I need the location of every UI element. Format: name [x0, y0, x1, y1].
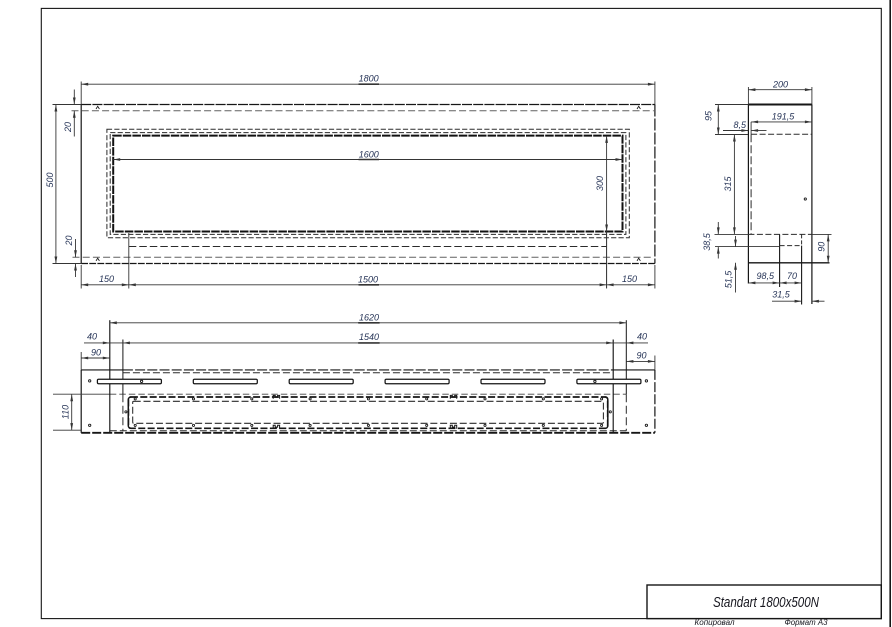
svg-text:315: 315	[723, 176, 733, 192]
svg-text:1500: 1500	[358, 274, 378, 284]
svg-text:51,5: 51,5	[724, 270, 734, 289]
svg-text:1540: 1540	[359, 332, 379, 342]
svg-text:40: 40	[87, 332, 97, 342]
svg-text:20: 20	[63, 122, 73, 133]
svg-text:191,5: 191,5	[772, 112, 796, 122]
svg-text:90: 90	[816, 242, 826, 252]
svg-text:38,5: 38,5	[702, 232, 712, 251]
svg-text:1620: 1620	[359, 312, 379, 322]
svg-text:150: 150	[99, 274, 114, 284]
svg-text:500: 500	[45, 172, 55, 187]
svg-text:70: 70	[787, 271, 797, 281]
svg-text:90: 90	[636, 351, 646, 361]
svg-text:1800: 1800	[359, 73, 379, 83]
svg-text:98,5: 98,5	[757, 271, 776, 281]
svg-text:1600: 1600	[359, 150, 379, 160]
svg-text:150: 150	[622, 274, 637, 284]
svg-text:Копировал: Копировал	[695, 618, 735, 627]
svg-text:Standart 1800x500N: Standart 1800x500N	[713, 595, 819, 611]
svg-text:110: 110	[61, 405, 71, 419]
svg-text:95: 95	[703, 110, 713, 121]
svg-text:8,5: 8,5	[734, 120, 748, 130]
svg-text:20: 20	[64, 235, 74, 246]
svg-text:31,5: 31,5	[772, 289, 791, 299]
svg-text:300: 300	[595, 176, 605, 191]
svg-text:200: 200	[772, 80, 788, 90]
svg-text:Формат А3: Формат А3	[785, 618, 829, 627]
svg-text:40: 40	[637, 332, 647, 342]
svg-text:90: 90	[91, 347, 101, 357]
